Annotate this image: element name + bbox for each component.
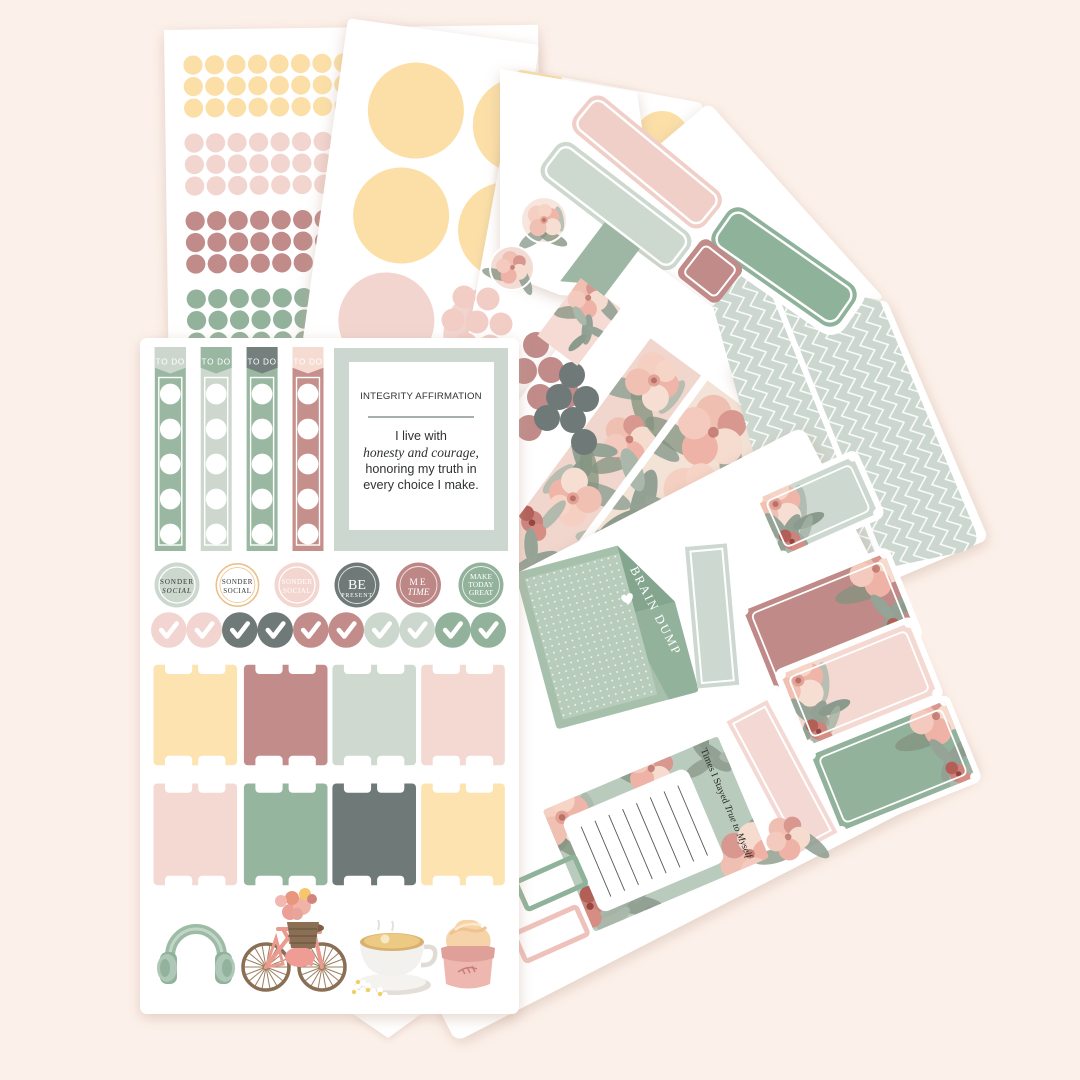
svg-text:ME: ME: [409, 578, 427, 588]
svg-text:TO DO: TO DO: [293, 358, 322, 367]
svg-text:PRESENT: PRESENT: [341, 593, 373, 599]
svg-text:SONDER: SONDER: [222, 578, 253, 586]
svg-text:I live with: I live with: [395, 429, 447, 443]
svg-text:SOCIAL: SOCIAL: [162, 587, 192, 595]
svg-text:SOCIAL: SOCIAL: [283, 587, 311, 595]
svg-text:TO DO: TO DO: [247, 358, 276, 367]
svg-text:SOCIAL: SOCIAL: [223, 587, 251, 595]
svg-text:BE: BE: [348, 578, 366, 593]
svg-text:TO DO: TO DO: [156, 358, 185, 367]
svg-text:INTEGRITY AFFIRMATION: INTEGRITY AFFIRMATION: [360, 391, 482, 402]
svg-text:every choice I make.: every choice I make.: [363, 478, 479, 492]
svg-text:GREAT: GREAT: [469, 588, 494, 597]
svg-text:TIME: TIME: [407, 588, 429, 598]
svg-text:TO DO: TO DO: [202, 358, 231, 367]
svg-text:honesty and courage,: honesty and courage,: [363, 445, 479, 460]
svg-text:honoring my truth in: honoring my truth in: [365, 462, 476, 476]
svg-text:SONDER: SONDER: [160, 578, 194, 586]
svg-text:SONDER: SONDER: [281, 578, 312, 586]
